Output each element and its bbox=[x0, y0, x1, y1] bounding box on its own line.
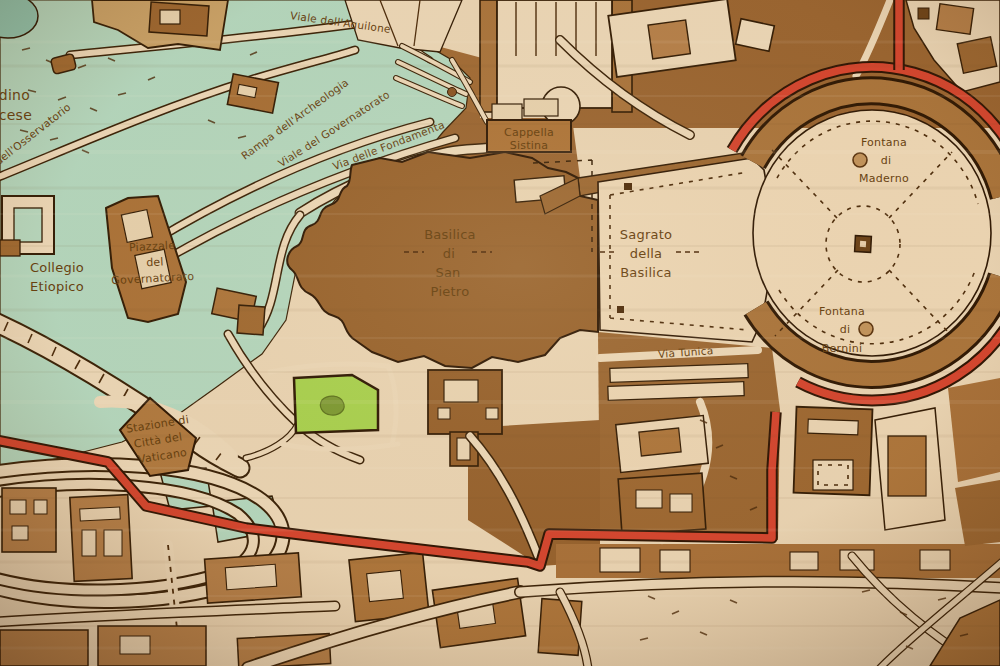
map-canvas: Viale dell'Aquilone dell'Osservatorio di… bbox=[0, 0, 1000, 666]
svg-text:della: della bbox=[630, 246, 663, 261]
svg-text:di: di bbox=[443, 246, 455, 261]
svg-text:Fontana: Fontana bbox=[819, 305, 865, 318]
label-cappella-sistina: Cappella Sistina bbox=[504, 126, 554, 152]
obelisk-marker bbox=[855, 236, 872, 253]
svg-text:Bernini: Bernini bbox=[822, 342, 862, 355]
svg-text:Maderno: Maderno bbox=[859, 172, 909, 185]
svg-text:Basilica: Basilica bbox=[424, 227, 476, 242]
svg-text:Sagrato: Sagrato bbox=[620, 227, 673, 242]
svg-text:Basilica: Basilica bbox=[620, 265, 672, 280]
svg-text:Sistina: Sistina bbox=[510, 139, 549, 152]
maderno-fountain-marker bbox=[853, 153, 867, 167]
svg-text:di: di bbox=[840, 323, 851, 336]
label-giardino-fragment-2: cese bbox=[0, 107, 32, 123]
svg-text:Cappella: Cappella bbox=[504, 126, 554, 139]
svg-text:San: San bbox=[435, 265, 460, 280]
svg-text:Collegio: Collegio bbox=[30, 260, 84, 275]
svg-text:Pietro: Pietro bbox=[431, 284, 470, 299]
label-giardino-fragment-1: dino bbox=[0, 87, 30, 103]
lawn-fountain bbox=[320, 396, 344, 415]
bernini-fountain-marker bbox=[859, 322, 873, 336]
svg-text:del: del bbox=[146, 255, 164, 269]
svg-text:Piazzale: Piazzale bbox=[129, 239, 176, 254]
svg-text:Fontana: Fontana bbox=[861, 136, 907, 149]
vatican-wood-map-photo: Viale dell'Aquilone dell'Osservatorio di… bbox=[0, 0, 1000, 666]
svg-text:Etiopico: Etiopico bbox=[30, 279, 84, 294]
svg-text:di: di bbox=[881, 154, 892, 167]
